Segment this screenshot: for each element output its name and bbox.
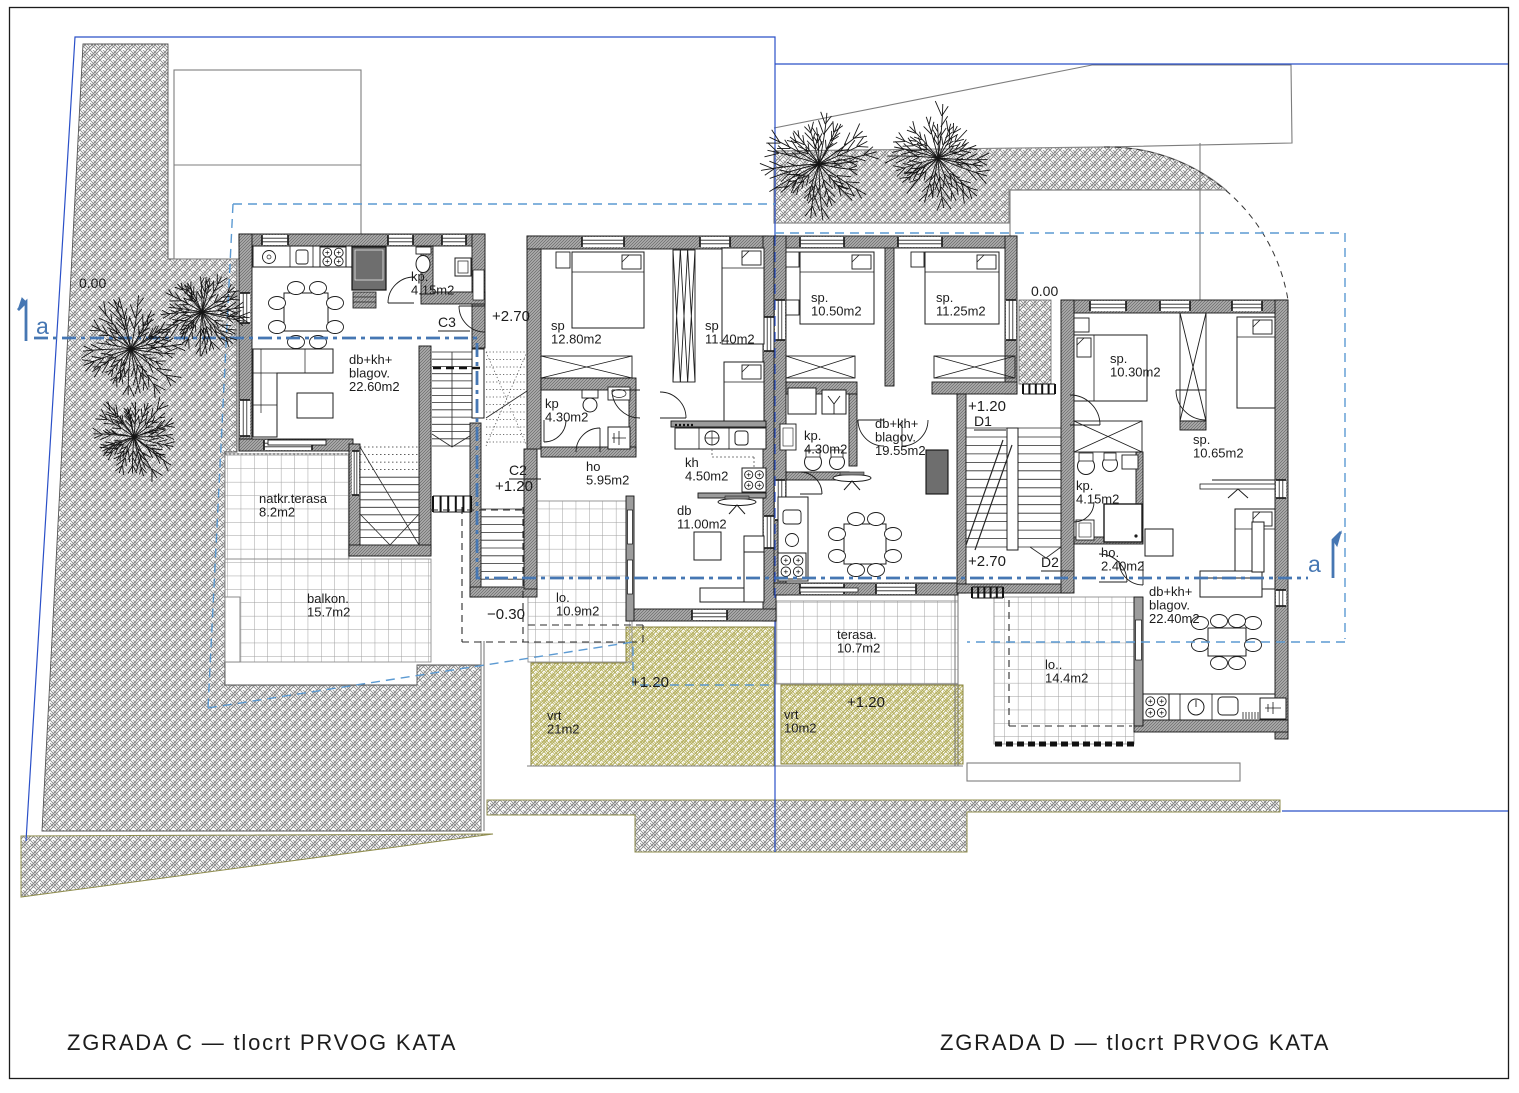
- svg-text:10.50m2: 10.50m2: [811, 304, 862, 319]
- svg-text:4.30m2: 4.30m2: [545, 410, 588, 425]
- svg-text:10.65m2: 10.65m2: [1193, 446, 1244, 461]
- svg-text:+1.20: +1.20: [631, 674, 669, 691]
- svg-text:4.15m2: 4.15m2: [1076, 492, 1119, 507]
- svg-text:11.25m2: 11.25m2: [936, 304, 986, 319]
- svg-text:10.7m2: 10.7m2: [837, 641, 880, 656]
- svg-text:22.40m2: 22.40m2: [1149, 611, 1200, 626]
- svg-text:11.00m2: 11.00m2: [677, 517, 727, 532]
- svg-text:12.80m2: 12.80m2: [551, 332, 602, 347]
- svg-text:ZGRADA D — tlocrt PRVOG KATA: ZGRADA D — tlocrt PRVOG KATA: [940, 1030, 1330, 1055]
- svg-text:4.50m2: 4.50m2: [685, 469, 728, 484]
- svg-text:2.40m2: 2.40m2: [1101, 559, 1144, 574]
- svg-text:a: a: [36, 313, 49, 339]
- svg-text:5.95m2: 5.95m2: [586, 473, 629, 488]
- svg-text:0.00: 0.00: [1031, 283, 1058, 299]
- svg-text:D1: D1: [974, 413, 992, 429]
- svg-text:4.30m2: 4.30m2: [804, 442, 847, 457]
- svg-text:14.4m2: 14.4m2: [1045, 671, 1088, 686]
- svg-text:C2: C2: [509, 462, 527, 478]
- svg-text:+2.70: +2.70: [968, 553, 1006, 570]
- svg-text:8.2m2: 8.2m2: [259, 505, 295, 520]
- svg-text:a: a: [1308, 551, 1321, 577]
- svg-text:+1.20: +1.20: [847, 694, 885, 711]
- svg-text:19.55m2: 19.55m2: [875, 443, 926, 458]
- svg-text:0.00: 0.00: [79, 275, 106, 291]
- svg-text:10.9m2: 10.9m2: [556, 604, 599, 619]
- svg-text:10m2: 10m2: [784, 721, 817, 736]
- svg-text:+1.20: +1.20: [495, 478, 533, 495]
- svg-text:21m2: 21m2: [547, 722, 580, 737]
- svg-text:10.30m2: 10.30m2: [1110, 365, 1161, 380]
- svg-text:D2: D2: [1041, 554, 1059, 570]
- svg-text:4.15m2: 4.15m2: [411, 283, 454, 298]
- svg-text:+2.70: +2.70: [492, 308, 530, 325]
- svg-text:−0.30: −0.30: [487, 606, 525, 623]
- svg-text:22.60m2: 22.60m2: [349, 379, 400, 394]
- svg-text:C3: C3: [438, 314, 456, 330]
- svg-text:15.7m2: 15.7m2: [307, 605, 350, 620]
- svg-text:ZGRADA C — tlocrt PRVOG KATA: ZGRADA C — tlocrt PRVOG KATA: [67, 1030, 457, 1055]
- svg-text:11.40m2: 11.40m2: [705, 332, 755, 347]
